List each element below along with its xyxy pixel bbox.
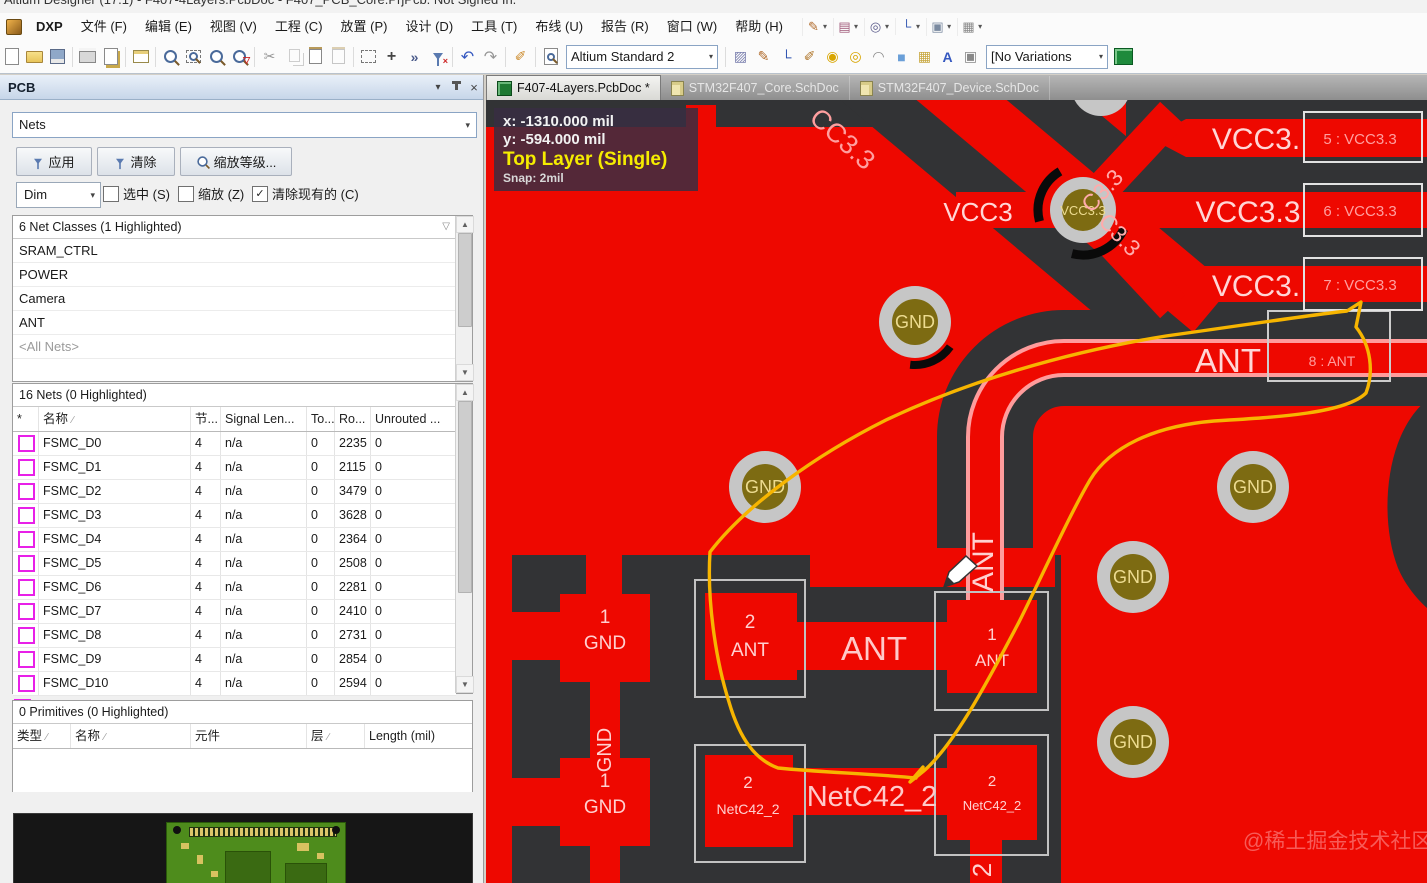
menu-file[interactable]: 文件 (F) — [72, 14, 136, 39]
pen-icon: ✎ — [758, 48, 770, 65]
browse-mode-value: Nets — [19, 117, 46, 132]
chevron-down-icon: ▾ — [885, 22, 889, 31]
via-gnd[interactable]: GND — [1097, 541, 1169, 613]
scroll-up-icon[interactable]: ▲ — [456, 384, 474, 401]
primitives-column-headers: 类型∕ 名称∕ 元件 层∕ Length (mil) — [13, 724, 472, 749]
panels-icon: ▣ — [929, 19, 946, 35]
panel-window-icon — [133, 50, 149, 63]
schematic-document-icon — [671, 81, 684, 96]
array-icon: ▦ — [918, 48, 931, 65]
window-title-bar: Altium Designer (17.1) - F407-4Layers.Pc… — [0, 0, 1427, 14]
nets-box: 16 Nets (0 Highlighted) * 名称∕ 节... Signa… — [12, 383, 473, 694]
clear-existing-checkbox[interactable]: ✓ — [252, 186, 268, 202]
net-row[interactable]: FSMC_D84n/a027310 — [13, 624, 456, 648]
dim-select[interactable]: Dim ▾ — [16, 182, 101, 208]
toolbar-separator — [125, 47, 126, 67]
net-row[interactable]: FSMC_D44n/a023640 — [13, 528, 456, 552]
select-checkbox[interactable] — [103, 186, 119, 202]
trace-label-vcc3-clipped: VCC3 — [943, 197, 1012, 227]
toolbar-separator — [535, 47, 536, 67]
pin-header-strip — [189, 827, 337, 837]
net-color-swatch[interactable] — [18, 507, 35, 524]
chevron-down-icon: ▾ — [947, 22, 951, 31]
diff-route-button[interactable]: ✐ — [799, 46, 820, 67]
fill-icon: ■ — [897, 49, 905, 65]
tab-device-schdoc[interactable]: STM32F407_Device.SchDoc — [850, 76, 1050, 100]
smd-component — [197, 855, 203, 864]
scrollbar-thumb[interactable] — [458, 233, 472, 327]
mounting-hole — [332, 826, 340, 834]
hatch-icon: ▨ — [734, 48, 747, 65]
magnifier-icon — [189, 52, 198, 61]
col-nodes[interactable]: 节... — [191, 407, 221, 431]
via-net-label: GND — [1233, 477, 1273, 497]
toolbar-separator — [353, 47, 354, 67]
smd-component — [297, 843, 309, 851]
pcb-editor-canvas[interactable]: VCC3 VCC3.3 GND GND GND GND — [486, 100, 1427, 883]
trace-label-ant: ANT — [841, 630, 907, 667]
net-color-swatch[interactable] — [18, 675, 35, 692]
scroll-up-icon[interactable]: ▲ — [456, 216, 474, 233]
scroll-down-icon[interactable]: ▼ — [456, 676, 474, 693]
zoom-area-icon — [186, 50, 201, 63]
clear-existing-checkbox-row[interactable]: ✓ 清除现有的 (C) — [252, 184, 359, 203]
place-fill-button[interactable]: ■ — [891, 46, 912, 67]
magnifier-icon — [164, 50, 177, 63]
schematic-document-icon — [860, 81, 873, 96]
trace-label-2-vertical: 2 — [967, 863, 997, 877]
clear-label: 清除 — [130, 152, 156, 171]
hatch-tool-button[interactable]: ▨ — [730, 46, 751, 67]
pin-designator: 6 : VCC3.3 — [1323, 203, 1396, 220]
chevron-down-icon: ▾ — [1099, 52, 1103, 61]
wand-button[interactable]: ✐ — [510, 46, 531, 67]
grid-tool-button[interactable]: ▦▾ — [957, 18, 984, 36]
select-checkbox-row[interactable]: 选中 (S) — [103, 184, 170, 203]
zoom-filtered-button[interactable]: ▽ — [229, 46, 250, 67]
zoom-checkbox-row[interactable]: 缩放 (Z) — [178, 184, 244, 203]
panel-close-button[interactable]: × — [465, 80, 483, 95]
browse-library-button[interactable] — [540, 46, 561, 67]
route-corner-icon: └ — [782, 49, 792, 65]
route-tool-button2[interactable]: └ — [776, 46, 797, 67]
menu-window[interactable]: 窗口 (W) — [658, 14, 727, 39]
variant-icon — [1114, 48, 1133, 65]
pad-net: GND — [584, 633, 626, 654]
chevron-down-icon: ▾ — [709, 52, 713, 61]
toolbar-separator — [72, 47, 73, 67]
browse-mode-select[interactable]: Nets ▾ — [12, 112, 477, 138]
zoom-level-label: 缩放等级... — [214, 152, 277, 171]
route-corner-icon: └ — [898, 19, 915, 34]
chevron-down-icon: ▾ — [465, 113, 470, 137]
clear-filter-button[interactable]: × — [427, 46, 448, 67]
col-name[interactable]: 名称∕ — [71, 724, 191, 748]
pcb-panel: PCB ▾ × Nets ▾ 应用 清除 缩放等级... Dim ▾ 选中 (S… — [0, 75, 484, 883]
redo-button[interactable]: ↷ — [480, 46, 501, 67]
via-gnd[interactable]: GND — [1217, 451, 1289, 523]
document-icon — [544, 48, 558, 65]
net-row[interactable]: FSMC_D24n/a034790 — [13, 480, 456, 504]
net-color-swatch[interactable] — [18, 579, 35, 596]
filter-icon: ▽ — [442, 216, 450, 238]
tab-core-schdoc[interactable]: STM32F407_Core.SchDoc — [661, 76, 850, 100]
net-color-swatch[interactable] — [18, 483, 35, 500]
undo-icon: ↶ — [461, 47, 474, 67]
binocular-icon: ◎ — [867, 19, 884, 35]
funnel-icon — [34, 159, 42, 165]
print-preview-icon — [104, 48, 118, 65]
net-row[interactable]: FSMC_D04n/a022350 — [13, 432, 456, 456]
clear-button[interactable]: 清除 — [97, 147, 175, 176]
main-toolbar: ▽ ✂ + » × ↶ ↷ ✐ Altium Standard 2▾ ▨ ✎ └… — [0, 40, 1427, 74]
net-color-swatch[interactable] — [18, 651, 35, 668]
toolset-value: Altium Standard 2 — [571, 49, 701, 64]
pin-designator: 5 : VCC3.3 — [1323, 131, 1396, 148]
select-area-button[interactable] — [358, 46, 379, 67]
trace-label-vcc: VCC3.3 — [1195, 196, 1300, 229]
watermark: @稀土掘金技术社区 — [1243, 830, 1427, 853]
altium-designer-window: Altium Designer (17.1) - F407-4Layers.Pc… — [0, 0, 1427, 883]
variant-manager-button[interactable] — [1113, 46, 1134, 67]
net-row[interactable]: FSMC_D94n/a028540 — [13, 648, 456, 672]
pad-net: ANT — [731, 640, 769, 661]
menu-help[interactable]: 帮助 (H) — [726, 14, 792, 39]
sort-ascending-icon: ∕ — [46, 732, 48, 743]
chevron-down-icon: ▾ — [916, 22, 920, 31]
magnifier-icon — [547, 53, 555, 61]
copy-button[interactable] — [282, 46, 303, 67]
nets-scrollbar[interactable]: ▲ ▼ — [455, 384, 472, 693]
paste-special-button[interactable] — [328, 46, 349, 67]
funnel-x-icon — [116, 159, 124, 165]
primitives-header: 0 Primitives (0 Highlighted) — [13, 701, 472, 724]
menu-dxp[interactable]: DXP — [27, 14, 72, 39]
apply-label: 应用 — [48, 152, 74, 171]
pad-number: 2 — [745, 612, 756, 633]
trace-label-vcc: VCC3. — [1212, 270, 1300, 303]
trace-label-vcc: VCC3. — [1212, 123, 1300, 156]
nets-header: 16 Nets (0 Highlighted) — [13, 384, 456, 407]
clipboard-icon — [309, 49, 322, 64]
panel-menu-button[interactable]: ▾ — [429, 82, 447, 93]
net-class-item[interactable]: SRAM_CTRL — [13, 239, 456, 263]
move-cross-icon: + — [387, 48, 396, 66]
chevron-down-icon: ▾ — [823, 22, 827, 31]
via-net-label: GND — [1113, 567, 1153, 587]
board-region — [285, 863, 327, 883]
sort-ascending-icon: ∕ — [104, 732, 106, 743]
place-array-button[interactable]: ▦ — [914, 46, 935, 67]
pad-net: NetC42_2 — [963, 798, 1022, 813]
move-button[interactable]: + — [381, 46, 402, 67]
pad-number: 1 — [600, 771, 611, 792]
net-class-item[interactable]: ANT — [13, 311, 456, 335]
net-row[interactable]: FSMC_D104n/a025940 — [13, 672, 456, 696]
menu-route[interactable]: 布线 (U) — [526, 14, 592, 39]
via-net-label: GND — [895, 312, 935, 332]
funnel-icon — [433, 53, 443, 60]
net-color-swatch[interactable] — [18, 627, 35, 644]
text-icon: A — [942, 49, 952, 65]
toolbar-separator — [452, 47, 453, 67]
print-preview-button[interactable] — [100, 46, 121, 67]
save-button[interactable] — [47, 46, 68, 67]
scrollbar-thumb[interactable] — [458, 401, 472, 593]
col-layer[interactable]: 层∕ — [307, 724, 365, 748]
place-pad-button[interactable]: ◉ — [822, 46, 843, 67]
pcb-panel-header: PCB ▾ × — [0, 75, 483, 100]
menu-bar: DXP 文件 (F) 编辑 (E) 视图 (V) 工程 (C) 放置 (P) 设… — [0, 13, 1427, 41]
net-row[interactable]: FSMC_D14n/a021150 — [13, 456, 456, 480]
chevron-down-icon: ▾ — [854, 22, 858, 31]
toolbar-separator — [725, 47, 726, 67]
via-gnd[interactable]: GND — [729, 451, 801, 523]
pin-designator: 8 : ANT — [1309, 353, 1356, 369]
pad-number: 2 — [988, 773, 996, 790]
heads-up-display: x: -1310.000 mil y: -594.000 mil Top Lay… — [494, 108, 698, 191]
open-button[interactable] — [24, 46, 45, 67]
pin-icon — [455, 81, 458, 90]
trace-label-netc42: NetC42_2 — [807, 781, 938, 813]
tab-pcbdoc[interactable]: F407-4Layers.PcbDoc * — [486, 75, 661, 100]
toolbar-separator — [254, 47, 255, 67]
cut-button[interactable]: ✂ — [259, 46, 280, 67]
clipboard-icon — [332, 49, 345, 64]
grid-icon: ▦ — [960, 19, 977, 35]
place-arc-button[interactable]: ◠ — [868, 46, 889, 67]
via-gnd[interactable]: GND — [1097, 706, 1169, 778]
find-tool-button[interactable]: ◎▾ — [864, 18, 891, 36]
col-name[interactable]: 名称∕ — [39, 407, 191, 431]
chevron-down-icon: ▾ — [978, 22, 982, 31]
printer-icon — [79, 51, 96, 63]
apply-button[interactable]: 应用 — [16, 147, 92, 176]
pin-designator: 7 : VCC3.3 — [1323, 277, 1396, 294]
document-tab-bar: F407-4Layers.PcbDoc * STM32F407_Core.Sch… — [486, 75, 1427, 100]
layers-icon: ▤ — [836, 19, 853, 35]
zoom-checkbox[interactable] — [178, 186, 194, 202]
chevron-down-icon: ▾ — [90, 183, 95, 207]
line-tool-button[interactable]: ✎ — [753, 46, 774, 67]
sort-ascending-icon: ∕ — [328, 732, 330, 743]
net-row[interactable]: FSMC_D64n/a022810 — [13, 576, 456, 600]
arc-icon: ◠ — [872, 48, 884, 65]
pcb-document-icon — [497, 81, 512, 96]
via-icon: ◎ — [849, 48, 861, 65]
primitives-empty-body — [13, 749, 472, 792]
col-length[interactable]: Length (mil) — [365, 724, 455, 748]
paste-button[interactable] — [305, 46, 326, 67]
check-icon: ✓ — [255, 187, 264, 200]
window-panel-button[interactable] — [130, 46, 151, 67]
zoom-area-button[interactable] — [183, 46, 204, 67]
dim-value: Dim — [24, 187, 47, 202]
col-unrouted[interactable]: Unrouted ... — [371, 407, 456, 431]
magnifier-icon — [210, 50, 223, 63]
net-class-item[interactable]: Camera — [13, 287, 456, 311]
toolset-combobox[interactable]: Altium Standard 2▾ — [566, 45, 718, 69]
net-row[interactable]: FSMC_D54n/a025080 — [13, 552, 456, 576]
menu-quick-tools: ✎▾ ▤▾ ◎▾ └▾ ▣▾ ▦▾ — [800, 14, 986, 39]
wand-icon: ✐ — [515, 48, 527, 65]
net-color-swatch[interactable] — [18, 555, 35, 572]
pad-icon: ◉ — [826, 48, 838, 65]
col-type[interactable]: 类型∕ — [13, 724, 71, 748]
tab-label: STM32F407_Core.SchDoc — [689, 81, 839, 95]
pad-net: NetC42_2 — [716, 801, 779, 817]
undo-button[interactable]: ↶ — [457, 46, 478, 67]
pen-icon: ✎ — [805, 19, 822, 35]
panel-pin-button[interactable] — [447, 81, 465, 93]
col-component[interactable]: 元件 — [191, 724, 307, 748]
smd-component — [317, 853, 324, 859]
net-row[interactable]: FSMC_D74n/a024100 — [13, 600, 456, 624]
net-row[interactable]: FSMC_D34n/a036280 — [13, 504, 456, 528]
cross-select-icon: » — [411, 49, 419, 65]
menu-project[interactable]: 工程 (C) — [266, 14, 332, 39]
variations-combobox[interactable]: [No Variations▾ — [986, 45, 1108, 69]
pcb-artwork: VCC3 VCC3.3 GND GND GND GND — [486, 100, 1427, 883]
net-color-swatch[interactable] — [18, 531, 35, 548]
pad-number: 2 — [743, 773, 752, 792]
select-checkbox-label: 选中 (S) — [123, 184, 170, 203]
via-gnd[interactable]: GND — [879, 286, 951, 358]
clear-existing-checkbox-label: 清除现有的 (C) — [272, 184, 359, 203]
menu-design[interactable]: 设计 (D) — [396, 14, 462, 39]
menu-tools[interactable]: 工具 (T) — [462, 14, 526, 39]
scroll-down-icon[interactable]: ▼ — [456, 364, 474, 381]
copy-icon — [289, 49, 300, 62]
net-classes-box: 6 Net Classes (1 Highlighted) ▽ SRAM_CTR… — [12, 215, 473, 382]
board-thumbnail — [166, 822, 346, 883]
net-class-item-all-nets[interactable]: <All Nets> — [13, 335, 456, 359]
window-title: Altium Designer (17.1) - F407-4Layers.Pc… — [4, 0, 516, 7]
panels-tool-button[interactable]: ▣▾ — [926, 18, 953, 36]
col-routed[interactable]: Ro... — [335, 407, 371, 431]
hud-snap: Snap: 2mil — [503, 171, 689, 185]
marquee-icon — [361, 50, 376, 63]
route-tool-button[interactable]: └▾ — [895, 18, 922, 35]
folder-icon — [26, 51, 43, 63]
net-class-item[interactable]: POWER — [13, 263, 456, 287]
net-color-swatch[interactable] — [18, 435, 35, 452]
trace-label-ant: ANT — [1195, 342, 1261, 379]
place-string-button[interactable]: A — [937, 46, 958, 67]
smd-component — [181, 843, 189, 849]
red-x-icon: × — [443, 56, 448, 66]
pad-number: 1 — [987, 625, 996, 644]
col-total[interactable]: To... — [307, 407, 335, 431]
place-component-button[interactable]: ▣ — [960, 46, 981, 67]
new-document-button[interactable] — [1, 46, 22, 67]
pad-number: 1 — [600, 607, 611, 628]
hud-x: x: -1310.000 mil — [503, 113, 689, 131]
toolbar-separator — [505, 47, 506, 67]
zoom-document-button[interactable] — [160, 46, 181, 67]
cross-select-button[interactable]: » — [404, 46, 425, 67]
nets-column-headers: * 名称∕ 节... Signal Len... To... Ro... Unr… — [13, 407, 456, 432]
sort-ascending-icon: ∕ — [72, 415, 74, 426]
filter-mark-icon: ▽ — [243, 55, 250, 66]
redo-icon: ↷ — [484, 47, 497, 67]
zoom-checkbox-label: 缩放 (Z) — [198, 184, 244, 203]
smd-component — [211, 871, 218, 877]
menu-view[interactable]: 视图 (V) — [201, 14, 266, 39]
zoom-out-button[interactable] — [206, 46, 227, 67]
col-swatch[interactable]: * — [13, 407, 39, 431]
hud-y: y: -594.000 mil — [503, 131, 689, 149]
dxp-icon — [6, 19, 22, 35]
trace-label-gnd-vertical: GND — [594, 728, 616, 772]
print-button[interactable] — [77, 46, 98, 67]
hud-layer: Top Layer (Single) — [503, 149, 689, 171]
menu-reports[interactable]: 报告 (R) — [592, 14, 658, 39]
layers-tool-button[interactable]: ▤▾ — [833, 18, 860, 36]
pad-net: GND — [584, 797, 626, 818]
tab-label: STM32F407_Device.SchDoc — [878, 81, 1039, 95]
board-preview-pane[interactable] — [13, 813, 473, 883]
scissors-icon: ✂ — [264, 48, 276, 65]
variations-value: [No Variations — [991, 49, 1091, 64]
net-classes-header: 6 Net Classes (1 Highlighted) ▽ — [13, 216, 456, 239]
net-classes-scrollbar[interactable]: ▲ ▼ — [455, 216, 472, 381]
toolbar-separator — [155, 47, 156, 67]
document-icon — [5, 48, 19, 65]
panel-title: PCB — [0, 80, 429, 95]
primitives-box: 0 Primitives (0 Highlighted) 类型∕ 名称∕ 元件 … — [12, 700, 473, 792]
net-color-swatch[interactable] — [18, 459, 35, 476]
via-net-label: GND — [1113, 732, 1153, 752]
net-color-swatch[interactable] — [18, 603, 35, 620]
mounting-hole — [173, 826, 181, 834]
menu-place[interactable]: 放置 (P) — [332, 14, 397, 39]
pen-alt-icon: ✐ — [804, 48, 816, 65]
tab-label: F407-4Layers.PcbDoc * — [517, 81, 650, 95]
menu-edit[interactable]: 编辑 (E) — [136, 14, 201, 39]
floppy-icon — [50, 49, 65, 64]
place-via-button[interactable]: ◎ — [845, 46, 866, 67]
chip-icon: ▣ — [964, 48, 977, 65]
board-region — [225, 851, 271, 883]
measure-tool-button[interactable]: ✎▾ — [802, 18, 829, 36]
col-signal-length[interactable]: Signal Len... — [221, 407, 307, 431]
magnifier-icon — [197, 156, 207, 166]
zoom-level-button[interactable]: 缩放等级... — [180, 147, 292, 176]
